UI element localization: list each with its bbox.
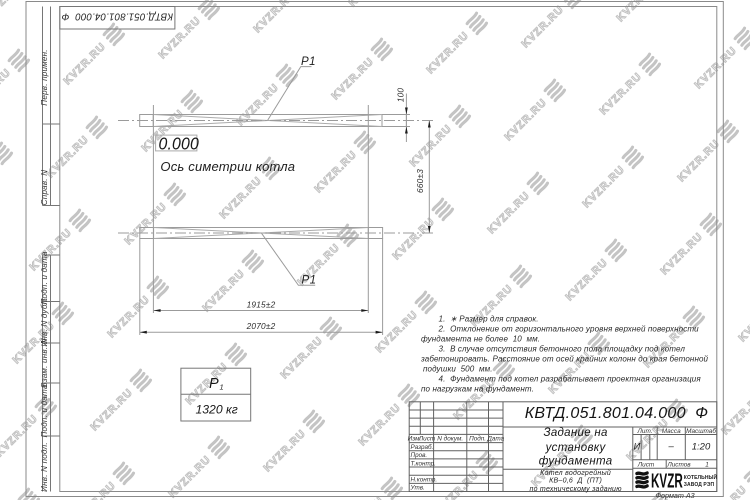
svg-text:КВТД.051.801.04.000 Ф: КВТД.051.801.04.000 Ф <box>525 405 709 422</box>
svg-text:Справ. N: Справ. N <box>40 170 49 205</box>
svg-text:N докум.: N докум. <box>437 435 463 443</box>
svg-text:0.000: 0.000 <box>159 133 200 153</box>
svg-text:1: 1 <box>220 383 224 392</box>
svg-text:Взам. инв. N: Взам. инв. N <box>40 338 49 388</box>
svg-text:KVZR: KVZR <box>651 469 683 492</box>
svg-text:КВ–0,6 Д (ПТ): КВ–0,6 Д (ПТ) <box>549 477 602 484</box>
svg-text:Формат А3: Формат А3 <box>655 491 694 500</box>
svg-text:Р1: Р1 <box>301 56 316 68</box>
svg-text:Подп. и дата: Подп. и дата <box>40 251 49 304</box>
svg-text:Масштаб: Масштаб <box>686 427 716 435</box>
svg-text:Пров.: Пров. <box>411 452 428 459</box>
svg-text:установку: установку <box>545 442 607 454</box>
svg-text:2. Отклонение от горизонтальн: 2. Отклонение от горизонтального уровня … <box>438 324 700 333</box>
svg-text:Н.контр.: Н.контр. <box>411 477 438 484</box>
svg-text:Лист: Лист <box>418 436 436 443</box>
svg-text:ЗАВОД РЭП: ЗАВОД РЭП <box>684 482 715 488</box>
svg-text:2070±2: 2070±2 <box>246 321 276 331</box>
svg-text:Масса: Масса <box>662 428 681 435</box>
svg-text:Утв.: Утв. <box>410 485 425 492</box>
svg-text:И: И <box>634 442 641 453</box>
svg-text:Задание на: Задание на <box>543 427 607 439</box>
svg-text:Котел водогрейный: Котел водогрейный <box>540 469 611 477</box>
svg-text:660±3: 660±3 <box>415 169 425 193</box>
svg-text:Р: Р <box>209 376 219 392</box>
svg-text:подушки 500 мм.: подушки 500 мм. <box>423 364 493 373</box>
svg-text:3. В случае отсутствия бетонн: 3. В случае отсутствия бетонного пола пл… <box>439 344 686 353</box>
svg-text:Дата: Дата <box>486 436 504 443</box>
svg-text:Подп.: Подп. <box>469 435 486 443</box>
svg-text:КОТЕЛЬНЫЙ: КОТЕЛЬНЫЙ <box>684 473 718 481</box>
svg-text:100: 100 <box>395 88 405 103</box>
svg-text:фундамента не более 10 мм.: фундамента не более 10 мм. <box>421 334 540 343</box>
svg-text:Т.контр.: Т.контр. <box>411 460 436 467</box>
svg-text:1915±2: 1915±2 <box>247 299 276 309</box>
svg-text:Перв. примен.: Перв. примен. <box>40 49 49 105</box>
svg-text:по техническому заданию: по техническому заданию <box>529 485 622 493</box>
svg-text:4. Фундамент под котел разраб: 4. Фундамент под котел разрабатывает про… <box>439 374 702 383</box>
svg-text:Ось симетрии котла: Ось симетрии котла <box>160 159 295 174</box>
svg-text:забетонировать. Расстояние от: забетонировать. Расстояние от осей крайн… <box>420 354 709 363</box>
svg-text:–: – <box>668 441 675 452</box>
svg-text:фундамента: фундамента <box>539 456 613 468</box>
svg-text:КВТД.051.801.04.000 Ф: КВТД.051.801.04.000 Ф <box>61 11 173 22</box>
svg-text:Лит.: Лит. <box>637 428 653 435</box>
svg-text:Листов: Листов <box>666 462 691 469</box>
svg-text:Лист: Лист <box>637 462 655 469</box>
svg-text:1:20: 1:20 <box>692 442 711 453</box>
svg-text:1. ∗ Размер для справок.: 1. ∗ Размер для справок. <box>439 314 539 323</box>
svg-text:Разраб.: Разраб. <box>411 443 434 451</box>
svg-text:по нагрузкам на фундамент.: по нагрузкам на фундамент. <box>421 384 534 393</box>
svg-text:Подп. и дата: Подп. и дата <box>40 384 49 437</box>
svg-text:1320 кг: 1320 кг <box>196 402 238 416</box>
svg-text:Инв. N подл.: Инв. N подл. <box>40 442 49 492</box>
svg-text:Р1: Р1 <box>302 275 317 287</box>
svg-text:1: 1 <box>705 462 709 469</box>
